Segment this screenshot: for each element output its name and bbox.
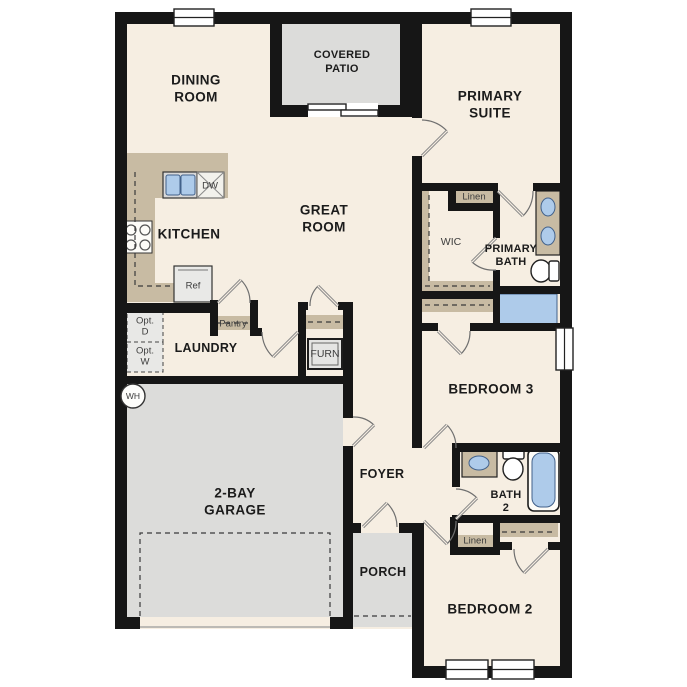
primary-toilet [531,260,559,282]
great-room-label-2: ROOM [302,220,346,235]
patio-sliding-door [308,103,378,117]
primary-bath-label-1: PRIMARY [485,243,538,255]
window-primary-suite [471,9,511,26]
foyer-label: FOYER [360,467,405,481]
bath2-tub [528,449,559,511]
primary-shower [497,294,557,324]
window-bedroom3 [556,328,573,370]
porch-label: PORCH [360,565,407,579]
dishwasher-label: DW [202,181,218,192]
primary-bath-label-2: BATH [496,256,527,268]
opt-dryer-label-2: D [142,327,149,338]
primary-suite-label-1: PRIMARY [458,89,523,104]
garage-label-2: GARAGE [204,503,266,518]
bath2-toilet [503,449,524,480]
stove [123,221,152,253]
covered-patio-label-2: PATIO [325,63,359,75]
kitchen-label: KITCHEN [158,227,221,242]
window-bedroom2-left [446,660,488,679]
garage-label-1: 2-BAY [214,486,255,501]
window-bedroom2-right [492,660,534,679]
laundry-label: LAUNDRY [175,341,238,355]
floor-plan: WH DINING ROOM COVERED PATIO PRIMARY SUI… [0,0,687,687]
bedroom2-closet-shelf [500,523,558,537]
bedroom3-label: BEDROOM 3 [448,382,533,397]
furnace-label: FURN [310,348,339,360]
bath2-label-1: BATH [491,489,522,501]
garage-slab [127,384,343,617]
dining-room-label-1: DINING [171,73,221,88]
linen-primary-label: Linen [462,192,485,203]
opt-dryer-label-1: Opt. [136,316,154,327]
opt-washer-label-1: Opt. [136,346,154,357]
bedroom2-label: BEDROOM 2 [447,602,532,617]
water-heater-label: WH [126,391,140,401]
opt-washer-label-2: W [141,357,150,368]
kitchen-sink [163,172,197,198]
pantry-label: Pantry [219,319,247,330]
window-dining [174,9,214,26]
linen-hall-label: Linen [463,536,486,547]
water-heater: WH [121,384,145,408]
bath2-label-2: 2 [503,502,509,514]
primary-suite-label-2: SUITE [469,106,511,121]
wic-label: WIC [441,236,462,248]
primary-vanity [536,191,560,255]
porch-slab [353,533,412,627]
great-room-label-1: GREAT [300,203,349,218]
covered-patio-label-1: COVERED [314,49,371,61]
dining-room-label-2: ROOM [174,90,218,105]
bath2-vanity [462,450,497,477]
refrigerator-label: Ref [186,281,201,292]
